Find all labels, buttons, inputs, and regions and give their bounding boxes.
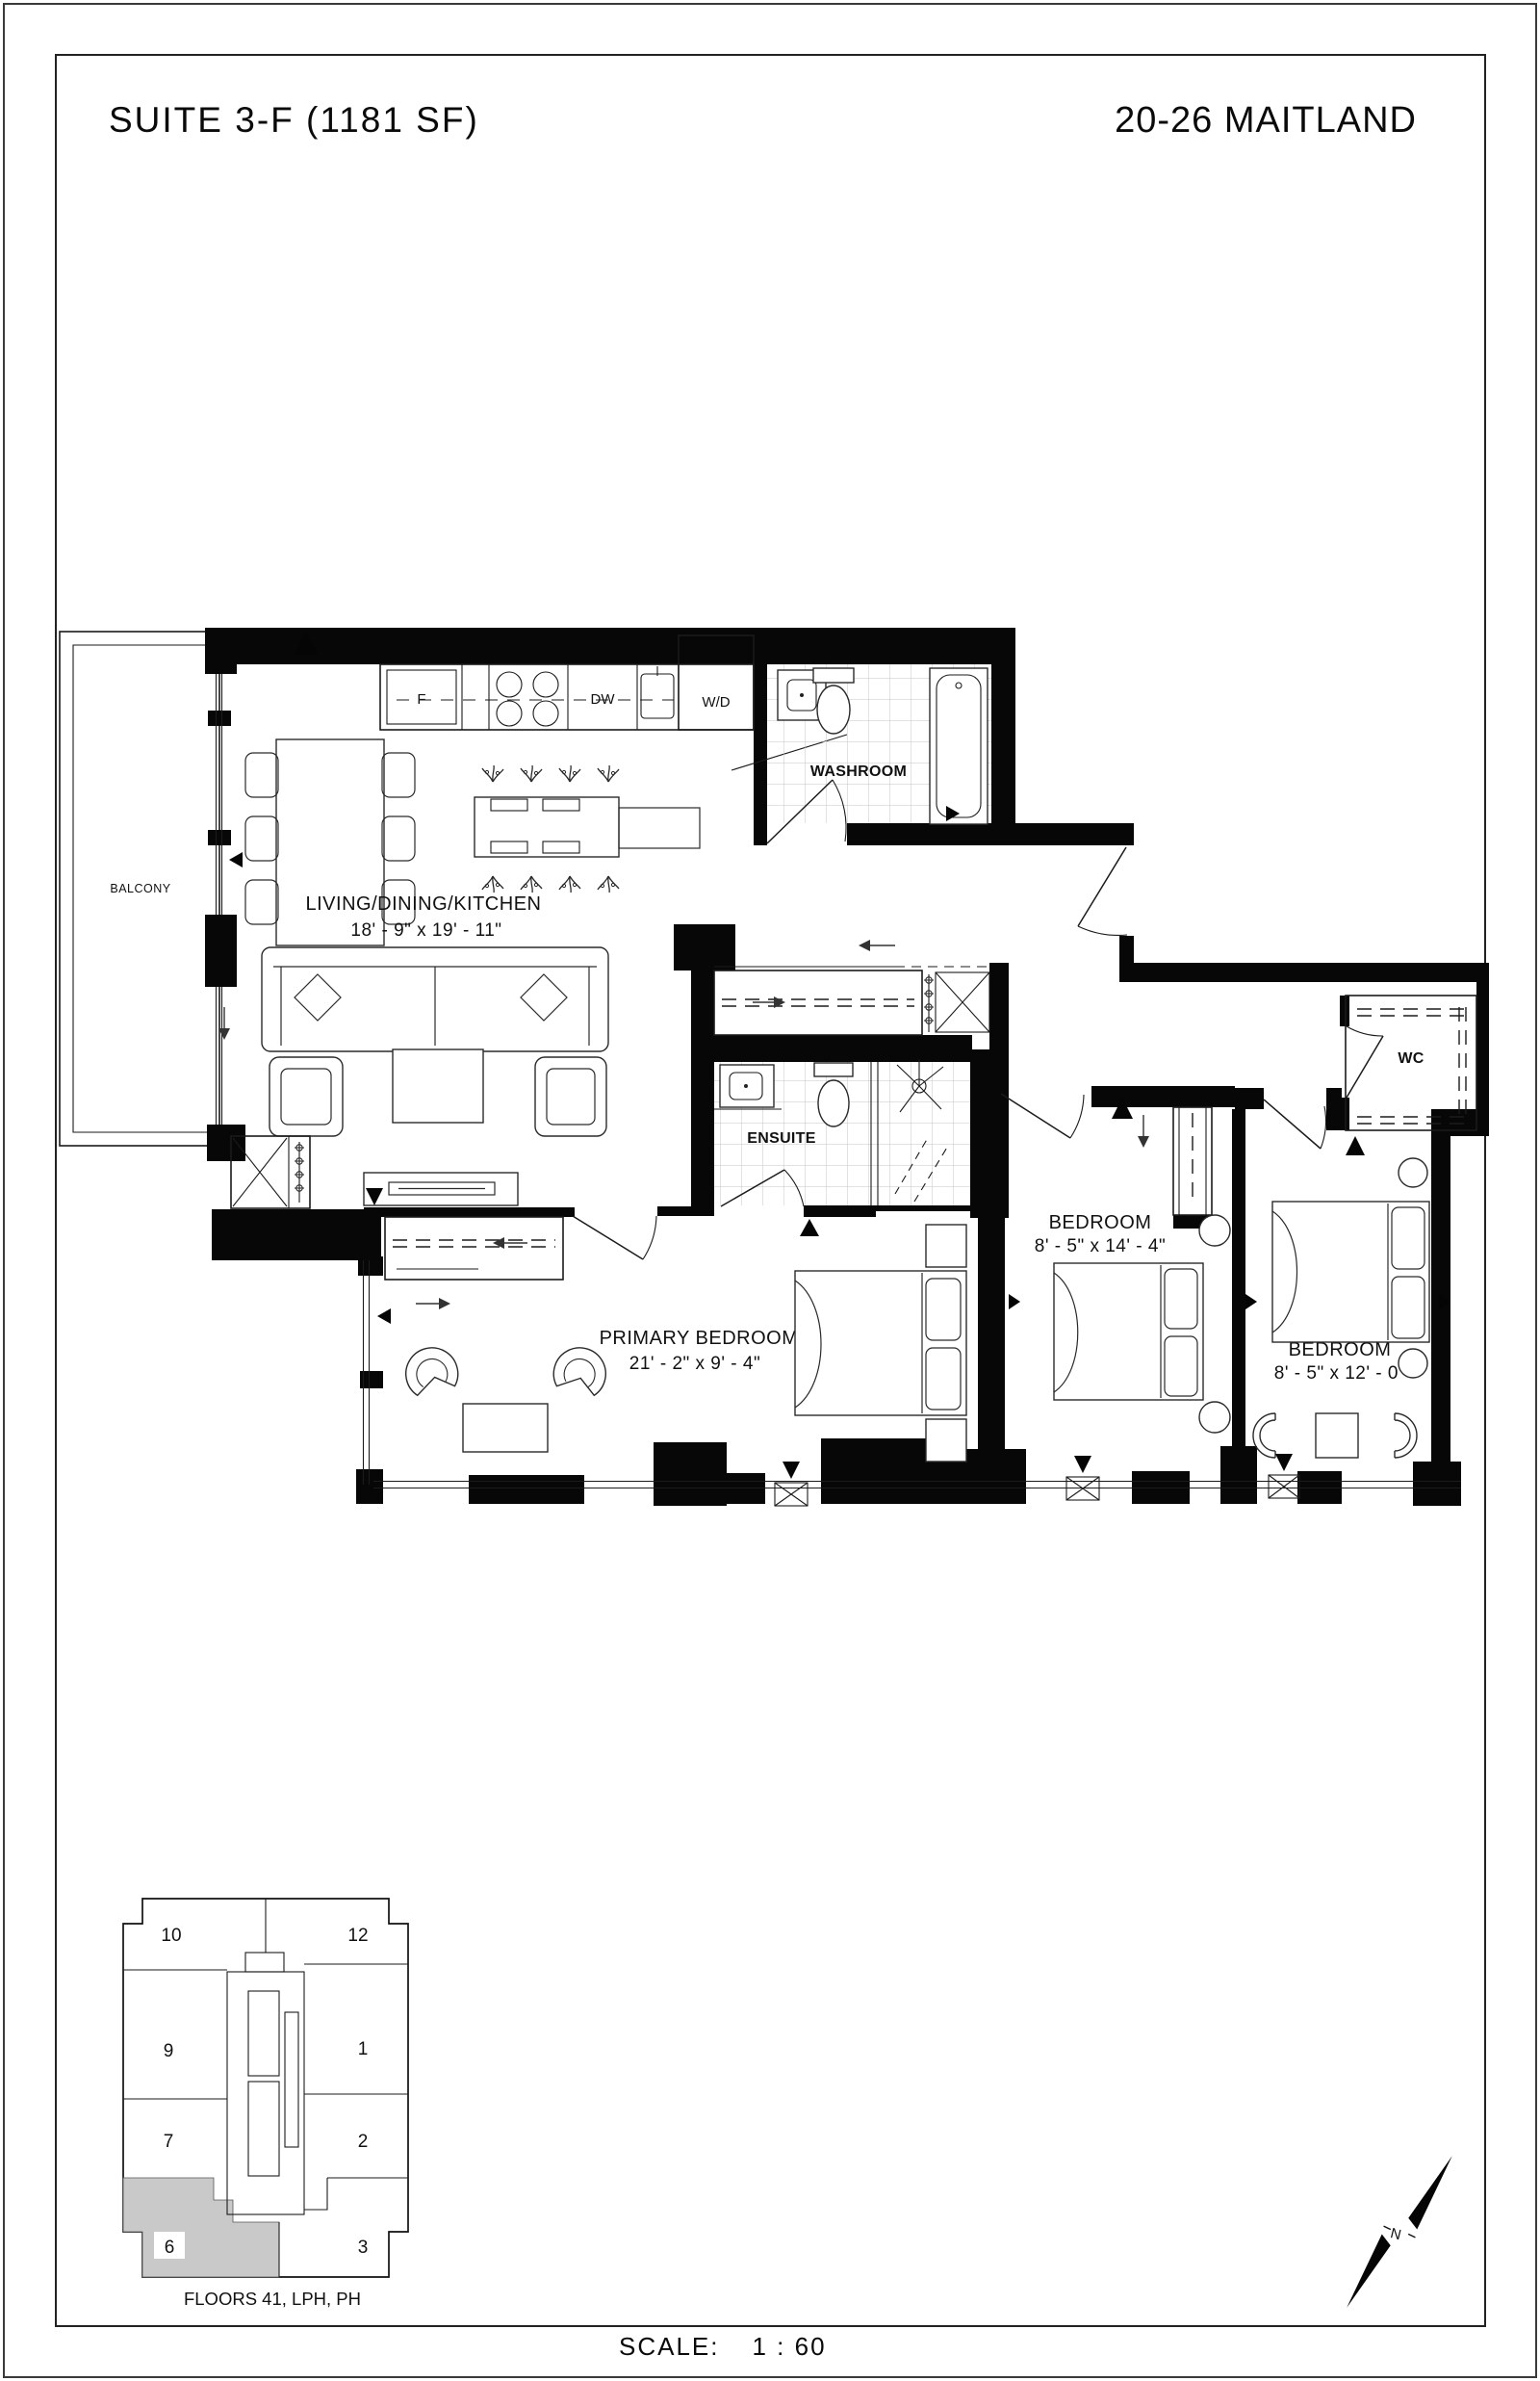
bedroom2-bed bbox=[1054, 1263, 1203, 1400]
suite-entry-door bbox=[1078, 847, 1127, 935]
bedroom3-dims: 8' - 5" x 12' - 0" bbox=[1274, 1363, 1405, 1384]
primary-bed bbox=[795, 1271, 966, 1415]
bedroom-3: BEDROOM 8' - 5" x 12' - 0" bbox=[1253, 1100, 1429, 1458]
balcony: BALCONY bbox=[60, 632, 219, 1146]
wc-door bbox=[1347, 1026, 1383, 1098]
bathtub bbox=[930, 668, 988, 824]
kitchen-sink bbox=[641, 666, 674, 718]
stove bbox=[497, 672, 558, 726]
ensuite-sink bbox=[714, 1065, 782, 1109]
bedroom3-door bbox=[1264, 1100, 1326, 1149]
keyplan-unit-2: 2 bbox=[358, 2132, 369, 2152]
bedroom2-label: BEDROOM bbox=[1049, 1212, 1152, 1233]
operable-window bbox=[775, 1483, 808, 1506]
linen-closet bbox=[936, 972, 989, 1032]
nightstand bbox=[926, 1225, 966, 1267]
ensuite-label: ENSUITE bbox=[747, 1130, 815, 1147]
nightstand bbox=[1399, 1349, 1427, 1378]
keyplan-unit-12: 12 bbox=[347, 1926, 368, 1946]
closet-direction-arrow bbox=[1138, 1115, 1149, 1148]
balcony-label: BALCONY bbox=[110, 882, 170, 895]
hall-closet bbox=[714, 967, 989, 1035]
armchair bbox=[269, 1057, 343, 1136]
bedroom2-closet bbox=[1173, 1107, 1212, 1215]
scale-label: SCALE: bbox=[619, 2332, 720, 2361]
bedroom2-dims: 8' - 5" x 14' - 4" bbox=[1035, 1236, 1166, 1256]
key-plan: 10 12 9 1 7 2 6 3 FLOORS 41, LPH, PH bbox=[123, 1899, 408, 2309]
scale-bar: SCALE:1 : 60 bbox=[619, 2332, 827, 2362]
bedroom-2: BEDROOM 8' - 5" x 14' - 4" bbox=[1001, 1094, 1230, 1433]
washer-dryer-label: W/D bbox=[702, 694, 730, 711]
keyplan-unit-7: 7 bbox=[164, 2132, 174, 2152]
living-label: LIVING/DINING/KITCHEN bbox=[306, 893, 542, 915]
hall-direction-arrow bbox=[859, 940, 895, 951]
primary-dims: 21' - 2" x 9' - 4" bbox=[629, 1354, 760, 1374]
keyplan-unit-3: 3 bbox=[358, 2238, 369, 2258]
bedroom2-door bbox=[1001, 1094, 1084, 1138]
nightstand bbox=[926, 1419, 966, 1462]
primary-label: PRIMARY BEDROOM bbox=[600, 1328, 799, 1349]
keyplan-caption: FLOORS 41, LPH, PH bbox=[184, 2289, 361, 2309]
keyplan-unit-10: 10 bbox=[161, 1926, 181, 1946]
sofa bbox=[262, 947, 608, 1051]
nightstand bbox=[1199, 1402, 1230, 1433]
ottoman bbox=[463, 1404, 548, 1452]
operable-window bbox=[1269, 1475, 1299, 1498]
bedroom3-bed bbox=[1272, 1202, 1429, 1342]
nightstand bbox=[1399, 1158, 1427, 1187]
washroom-label: WASHROOM bbox=[810, 763, 907, 780]
keyplan-unit-6: 6 bbox=[165, 2238, 175, 2258]
primary-closet bbox=[385, 1217, 563, 1280]
north-arrow: N bbox=[1335, 2145, 1463, 2318]
floorplan-page: SUITE 3-F (1181 SF) 20-26 MAITLAND BALCO… bbox=[0, 0, 1540, 2381]
side-table bbox=[1316, 1413, 1358, 1458]
washroom: WASHROOM bbox=[767, 664, 991, 843]
ensuite: ENSUITE bbox=[714, 1059, 970, 1206]
keyplan-unit-1: 1 bbox=[358, 2039, 369, 2059]
north-label: N bbox=[1389, 2225, 1403, 2243]
primary-door bbox=[573, 1216, 656, 1259]
floor-plan-drawing: BALCONY bbox=[0, 0, 1540, 2381]
keyplan-unit-9: 9 bbox=[164, 2041, 174, 2061]
nightstand bbox=[1199, 1215, 1230, 1246]
tv-console bbox=[364, 1173, 518, 1205]
armchair bbox=[535, 1057, 606, 1136]
scale-value: 1 : 60 bbox=[753, 2332, 827, 2361]
entry-direction-arrow bbox=[416, 1298, 450, 1309]
primary-bedroom: PRIMARY BEDROOM 21' - 2" x 9' - 4" bbox=[385, 1216, 966, 1462]
wc-label: WC bbox=[1398, 1050, 1424, 1067]
kitchen-island bbox=[475, 765, 700, 893]
living-dims: 18' - 9" x 19' - 11" bbox=[350, 920, 501, 941]
coffee-table bbox=[393, 1049, 483, 1123]
